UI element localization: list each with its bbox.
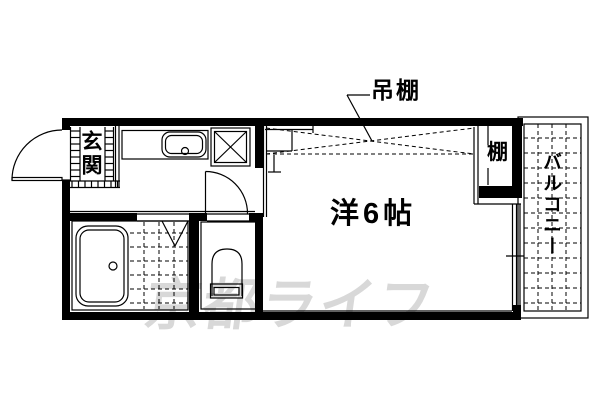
toilet-door [206,172,250,222]
shelf-label: 棚 [487,142,508,164]
overhead-shelf-dashed [265,126,474,204]
washing-machine-pan [211,128,250,166]
entry-door [12,129,70,181]
main-room-label: 洋6帖 [330,199,416,229]
hanging-shelf-label: 吊棚 [371,78,421,102]
bath-folding-door [137,214,190,246]
bathtub [76,226,128,306]
kitchen-sink [162,132,206,157]
sliding-window [506,204,524,311]
floor-plan: 玄関 吊棚 棚 洋6帖 バルコニー 京都ライフ [0,0,600,400]
toilet-room [201,172,256,310]
floor-plan-drawing [0,0,600,400]
bathroom [72,214,190,310]
room-door-opening [264,126,282,217]
toilet [211,249,243,298]
balcony-label: バルコニー [540,152,560,257]
entrance-label: 玄関 [79,130,101,178]
bath-tile-floor [130,222,188,309]
